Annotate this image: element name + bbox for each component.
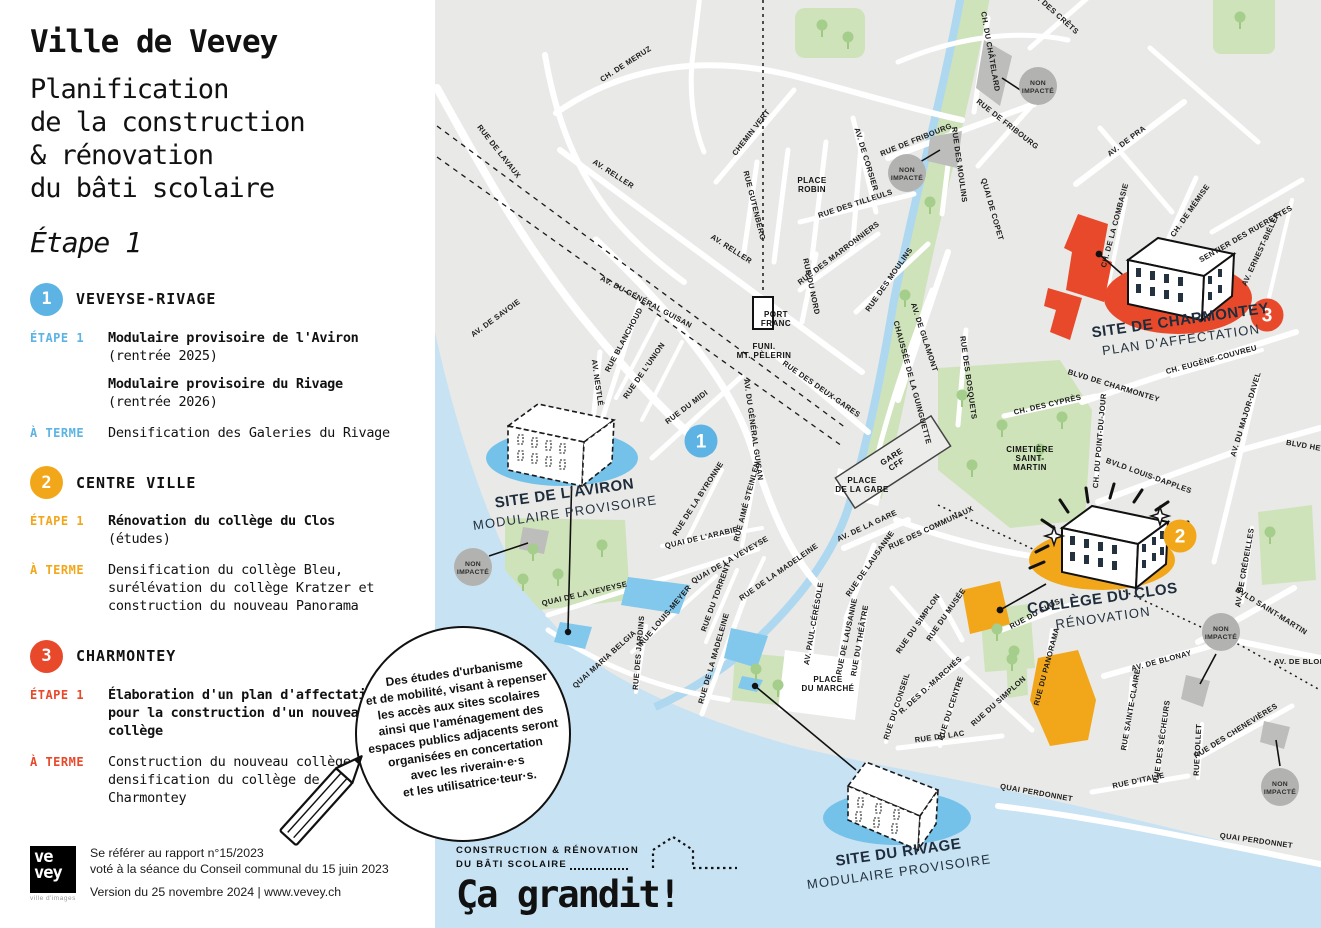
campaign-line1: CONSTRUCTION & RÉNOVATION (456, 844, 639, 858)
non-impacte-badge: NONIMPACTÉ (1019, 67, 1057, 105)
stage-title: Étape 1 (30, 226, 435, 259)
place-label: PORTFRANC (761, 310, 791, 328)
logo-tagline: ville d'images (30, 895, 76, 902)
section-name: CHARMONTEY (76, 647, 176, 665)
subtitle-line: du bâti scolaire (30, 173, 435, 206)
logo-text: vey (34, 865, 76, 881)
section-number-badge: 3 (30, 640, 63, 673)
plan-item: Densification du collège Bleu, surélévat… (108, 561, 393, 615)
section-veveyse-rivage: 1 VEVEYSE-RIVAGE ÉTAPE 1 Modulaire provi… (30, 283, 435, 442)
pencil-icon (270, 670, 400, 860)
svg-text:1: 1 (696, 432, 707, 453)
campaign-logo: CONSTRUCTION & RÉNOVATION DU BÂTI SCOLAI… (456, 834, 741, 916)
svg-text:2: 2 (1175, 527, 1186, 548)
terme-label: À TERME (30, 561, 108, 615)
etape-label: ÉTAPE 1 (30, 686, 108, 740)
place-label: PLACEROBIN (797, 176, 827, 194)
non-impacte-badge: NONIMPACTÉ (888, 154, 926, 192)
non-impacte-badge: NONIMPACTÉ (1261, 768, 1299, 806)
section-number-badge: 1 (30, 283, 63, 316)
terme-label: À TERME (30, 424, 108, 442)
dotted-leader (570, 868, 628, 870)
vevey-logo: ve vey (30, 846, 76, 893)
subtitle-line: & rénovation (30, 140, 435, 173)
section-number-badge: 2 (30, 466, 63, 499)
terme-label: À TERME (30, 753, 108, 807)
poster-page: RUE DE LAVAUXCH. DE MERUZCHEMIN VERTAV. … (0, 0, 1321, 928)
etape-label: ÉTAPE 1 (30, 329, 108, 411)
page-title: Ville de Vevey (30, 24, 435, 60)
campaign-line2: DU BÂTI SCOLAIRE (456, 858, 567, 872)
plan-item: Modulaire provisoire de l'Aviron (rentré… (108, 329, 393, 365)
section-name: CENTRE VILLE (76, 474, 196, 492)
subtitle-line: Planification (30, 74, 435, 107)
dotted-house-icon (645, 834, 741, 872)
plan-item: Rénovation du collège du Clos (études) (108, 512, 393, 548)
non-impacte-badge: NONIMPACTÉ (454, 548, 492, 586)
plan-item: Modulaire provisoire du Rivage (rentrée … (108, 375, 393, 411)
section-centre-ville: 2 CENTRE VILLE ÉTAPE 1 Rénovation du col… (30, 466, 435, 615)
map-marker-1: 1 (685, 425, 718, 458)
etape-label: ÉTAPE 1 (30, 512, 108, 548)
section-name: VEVEYSE-RIVAGE (76, 290, 216, 308)
subtitle-line: de la construction (30, 107, 435, 140)
street-label: AV. DE BLONAY (1274, 657, 1321, 666)
clos-building (1062, 506, 1168, 588)
page-subtitle: Planification de la construction & rénov… (30, 74, 435, 206)
campaign-slogan: Ça grandit! (456, 873, 741, 916)
map-marker-2: 2 (1164, 520, 1197, 553)
non-impacte-badge: NONIMPACTÉ (1202, 613, 1240, 651)
footer-version: Version du 25 novembre 2024 | www.vevey.… (90, 885, 389, 901)
footer-reference: voté à la séance du Conseil communal du … (90, 862, 389, 878)
plan-item: Densification des Galeries du Rivage (108, 424, 393, 442)
